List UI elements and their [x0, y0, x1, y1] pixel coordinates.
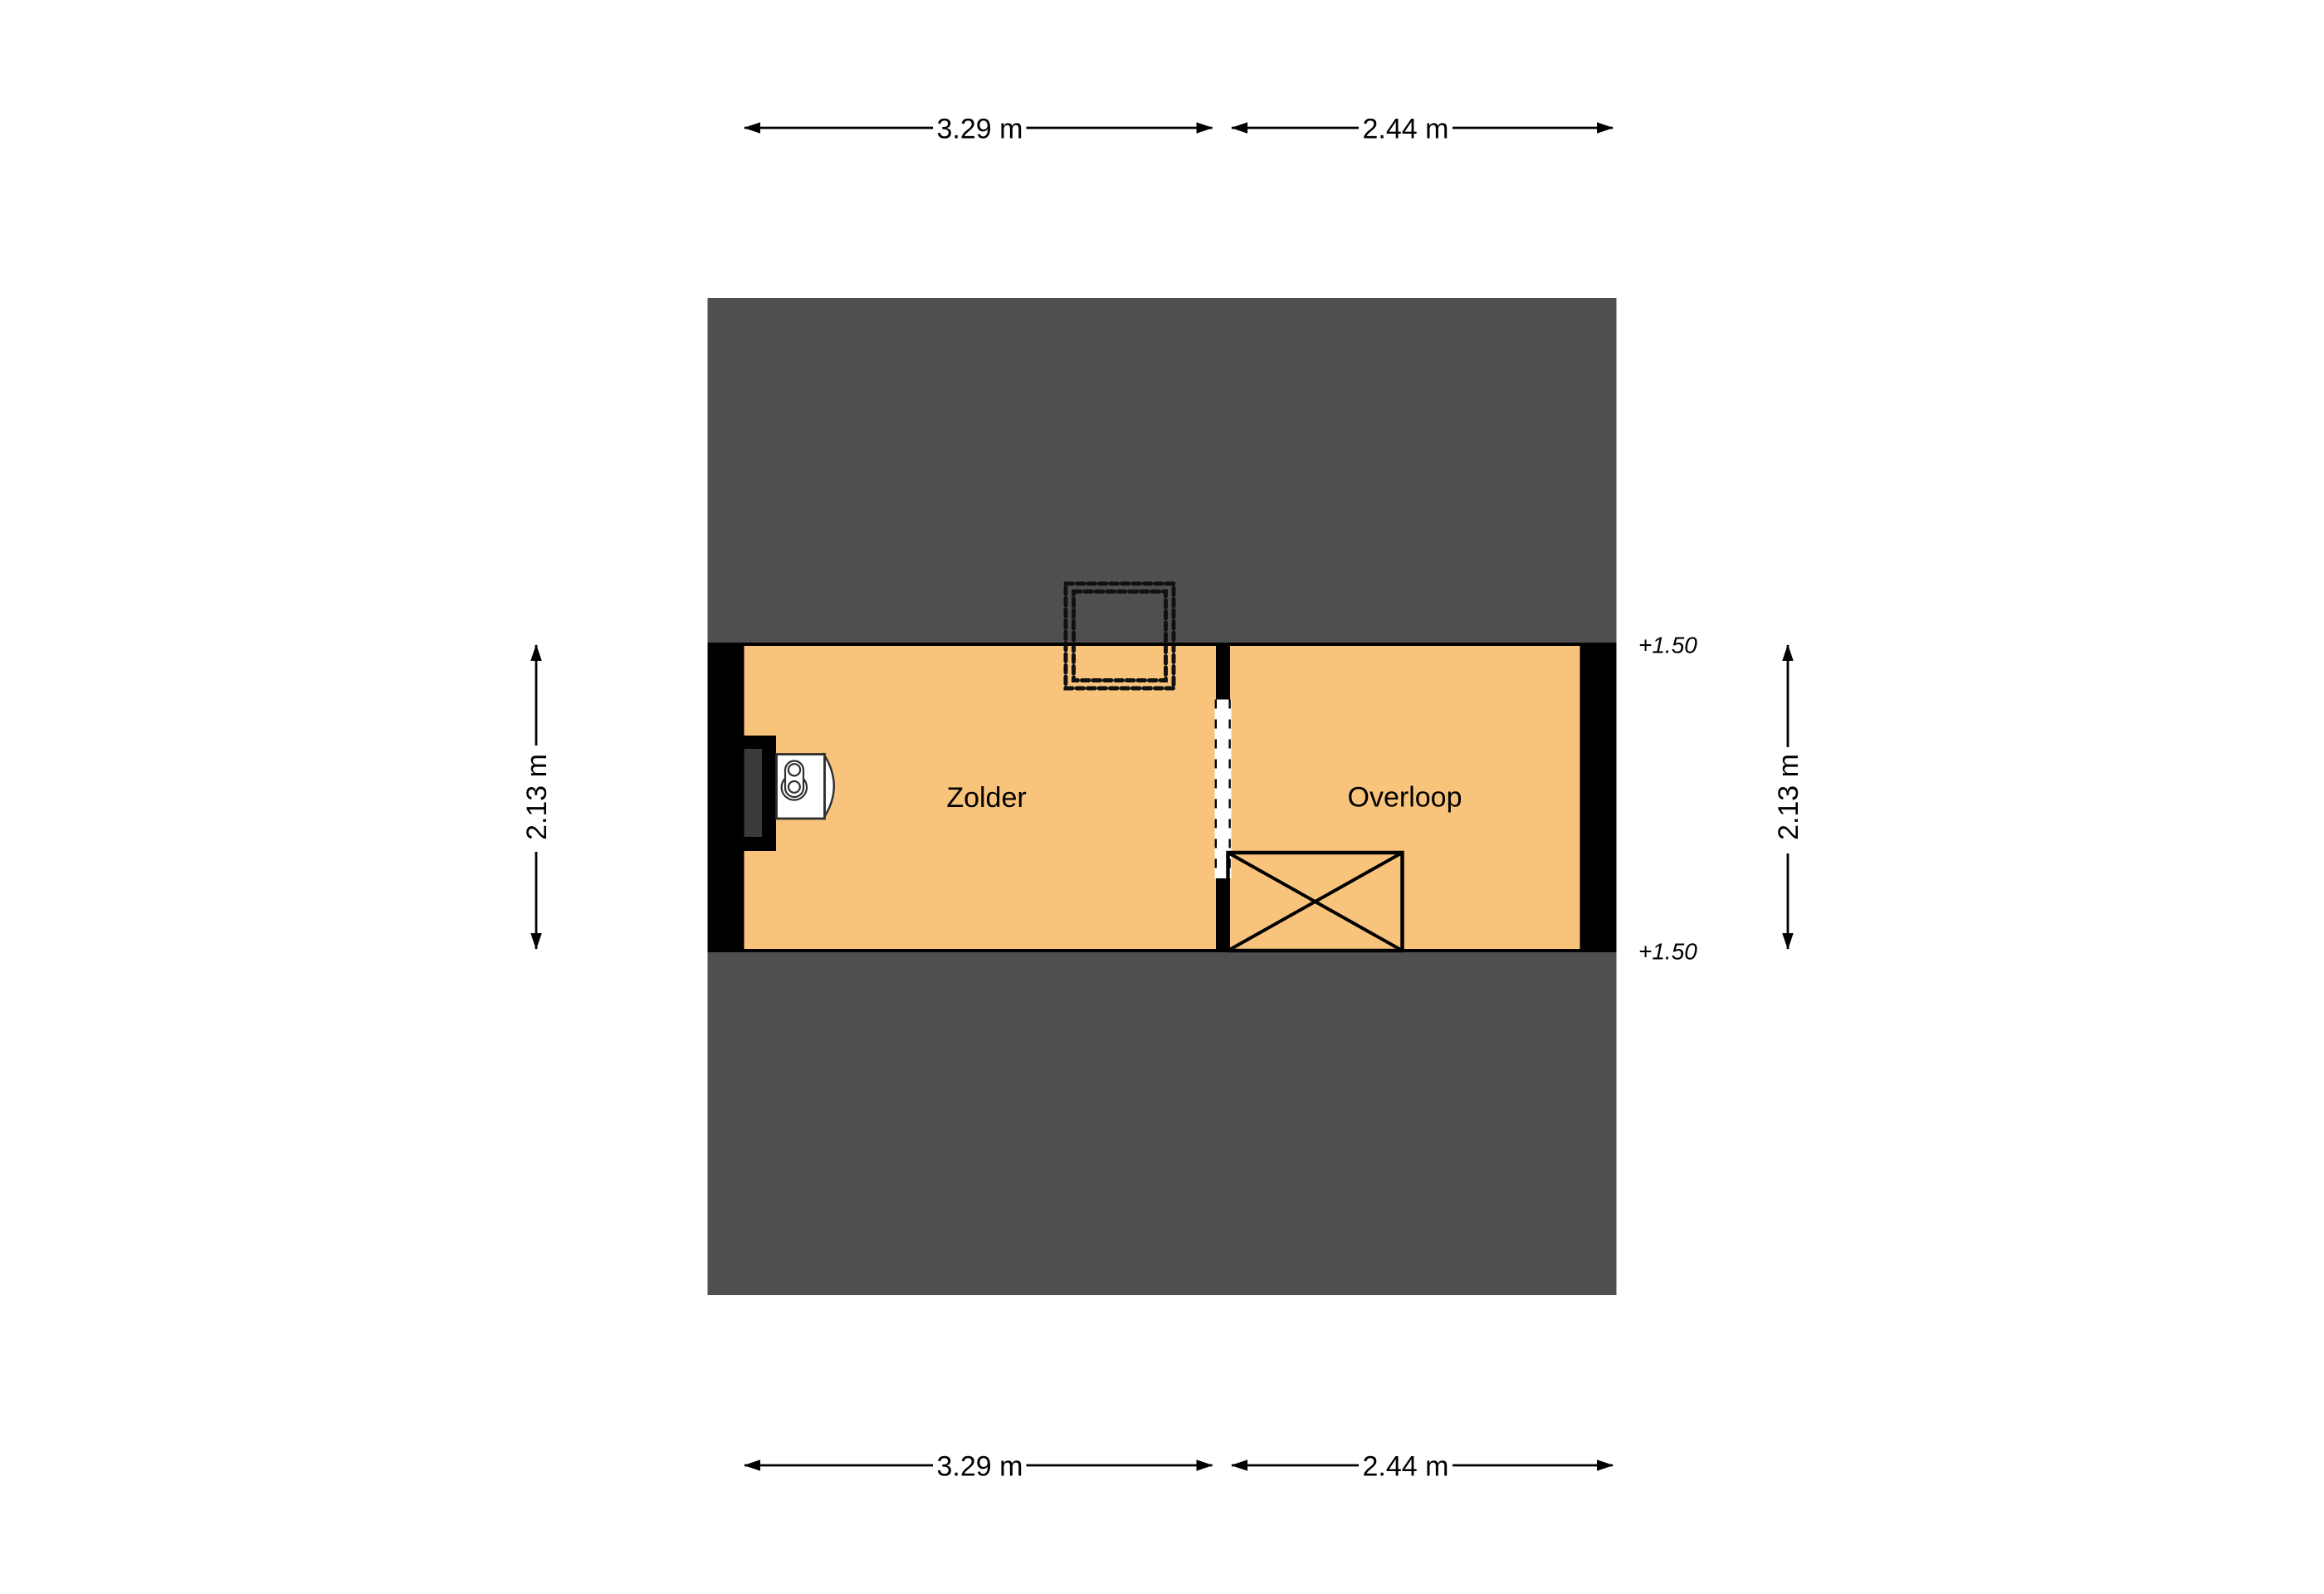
svg-text:Overloop: Overloop [1348, 782, 1462, 814]
svg-text:2.44 m: 2.44 m [1363, 114, 1449, 145]
svg-text:+1.50: +1.50 [1638, 939, 1697, 965]
svg-text:2.44 m: 2.44 m [1363, 1451, 1449, 1483]
svg-text:+1.50: +1.50 [1638, 633, 1697, 658]
svg-text:3.29 m: 3.29 m [937, 114, 1023, 145]
svg-text:3.29 m: 3.29 m [937, 1451, 1023, 1483]
svg-text:2.13 m: 2.13 m [521, 754, 553, 840]
svg-text:Zolder: Zolder [946, 782, 1026, 814]
svg-text:2.13 m: 2.13 m [1773, 754, 1804, 840]
